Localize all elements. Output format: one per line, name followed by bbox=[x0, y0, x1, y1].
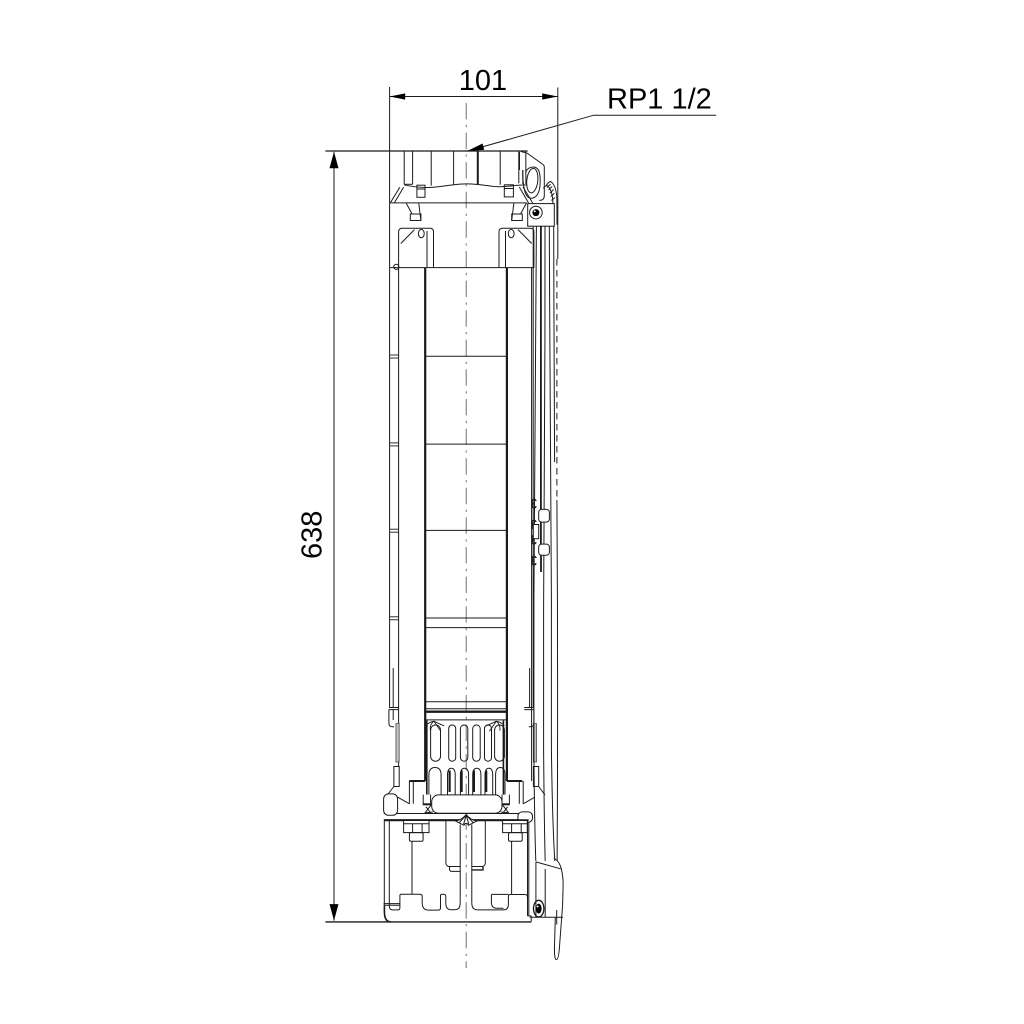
svg-text:638: 638 bbox=[297, 511, 329, 559]
svg-text:101: 101 bbox=[459, 65, 507, 97]
svg-text:RP1 1/2: RP1 1/2 bbox=[607, 84, 712, 116]
